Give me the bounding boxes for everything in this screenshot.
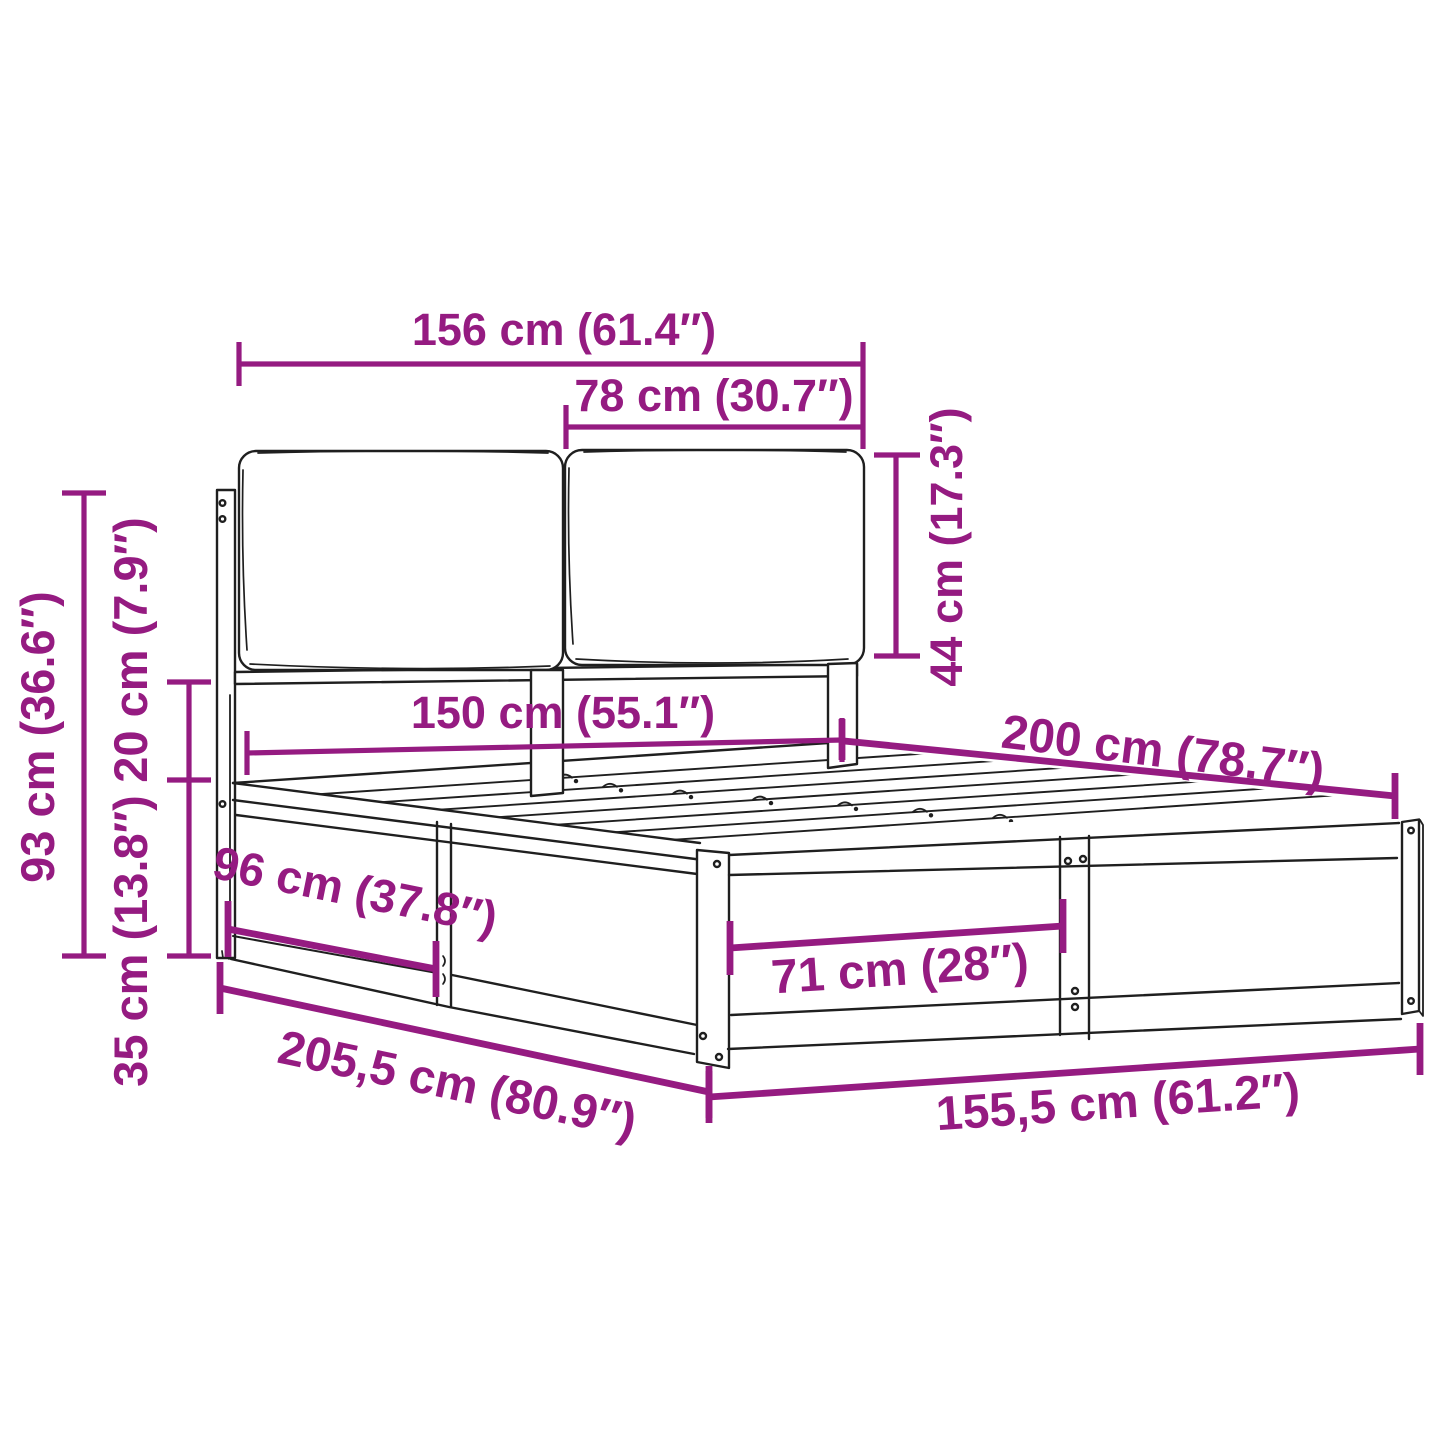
svg-text:44 cm (17.3″): 44 cm (17.3″) (921, 407, 972, 686)
svg-text:93 cm (36.6″): 93 cm (36.6″) (11, 591, 64, 883)
svg-text:35 cm (13.8″): 35 cm (13.8″) (104, 795, 157, 1087)
svg-text:20 cm (7.9″): 20 cm (7.9″) (104, 517, 157, 782)
svg-text:150 cm (55.1″): 150 cm (55.1″) (411, 687, 715, 738)
svg-text:78 cm (30.7″): 78 cm (30.7″) (574, 370, 853, 421)
svg-text:156 cm (61.4″): 156 cm (61.4″) (412, 304, 716, 355)
